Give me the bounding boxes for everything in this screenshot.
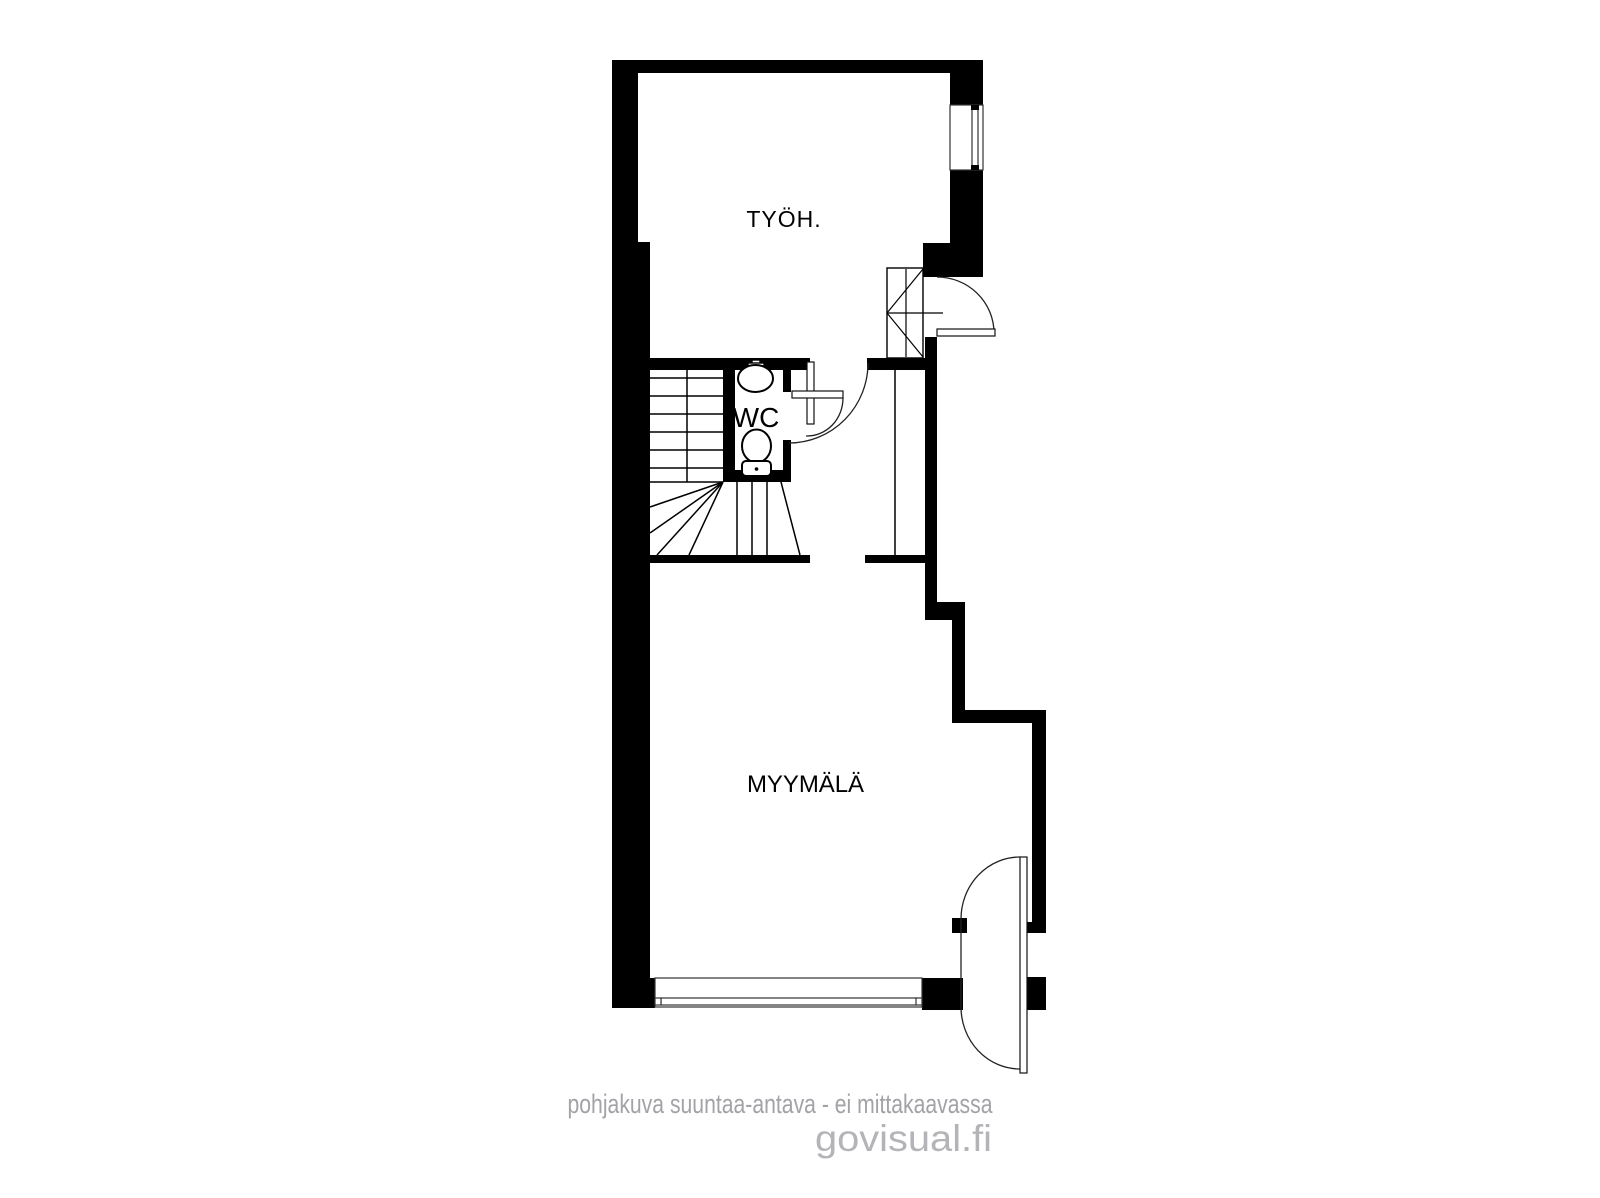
room-label-wc: WC [733, 402, 780, 433]
wall-shaft-bottom [865, 555, 925, 563]
wall-top [612, 60, 983, 73]
entry-door [937, 277, 995, 336]
hall-door-swing-arc [789, 363, 868, 443]
wall-entry-stub [923, 243, 983, 277]
window-glass-cap [971, 105, 979, 110]
wall-left-upper [612, 60, 638, 242]
floor-plan-page: TYÖH. WC MYYMÄLÄ pohjakuva suuntaa-antav… [0, 0, 1600, 1198]
storefront-glass-line [661, 998, 917, 1005]
stair-winder-edge [781, 482, 800, 555]
wall-right-above-window [950, 60, 983, 105]
wall-left-bottom [612, 978, 655, 1008]
hall-door [789, 362, 868, 443]
window-glass-cap [971, 165, 979, 170]
entry-door-leaf [937, 329, 995, 336]
storefront-glass-cap [916, 998, 922, 1005]
storefront-glass-cap [655, 998, 661, 1005]
wall-bottom-mid [922, 978, 963, 1010]
wall-left-main [612, 242, 650, 978]
wall-stair-bottom [650, 555, 810, 563]
room-label-myymala: MYYMÄLÄ [747, 771, 865, 798]
shop-door-leaf [1020, 857, 1027, 1073]
window-glass-line [972, 107, 978, 168]
stair-winder-line [689, 482, 723, 555]
entry-door-swing-arc [937, 277, 994, 333]
shop-door-swing-arc-bottom [961, 1007, 1020, 1069]
wall-wc-east-upper [783, 358, 791, 392]
wc-door-leaf [792, 391, 843, 398]
window-top-right [950, 105, 983, 170]
storefront-window [655, 978, 922, 1007]
sink-bowl [738, 365, 773, 392]
wall-right-lower [1032, 723, 1046, 933]
watermark-logo: govisual.fi [815, 1118, 992, 1159]
wall-right-mid [952, 618, 965, 723]
stair-winder-line [650, 482, 723, 533]
room-label-tyoh: TYÖH. [746, 206, 821, 232]
toilet-flush-dot [755, 467, 759, 471]
wall-doorstub-inner-left [952, 918, 967, 933]
toilet [742, 430, 771, 477]
shop-door-swing-arc-top [961, 857, 1020, 919]
wall-tyoh-bottom-right [867, 358, 925, 370]
wall-step-2 [952, 710, 1046, 723]
walls [612, 60, 1046, 1010]
wall-step-1 [925, 602, 965, 620]
wc-door [792, 391, 843, 436]
shop-double-door [961, 857, 1027, 1073]
disclaimer-text: pohjakuva suuntaa-antava - ei mittakaava… [568, 1089, 994, 1119]
wall-hall-east [925, 337, 937, 602]
toilet-bowl [742, 430, 771, 463]
floor-plan-svg: TYÖH. WC MYYMÄLÄ pohjakuva suuntaa-antav… [0, 0, 1600, 1198]
